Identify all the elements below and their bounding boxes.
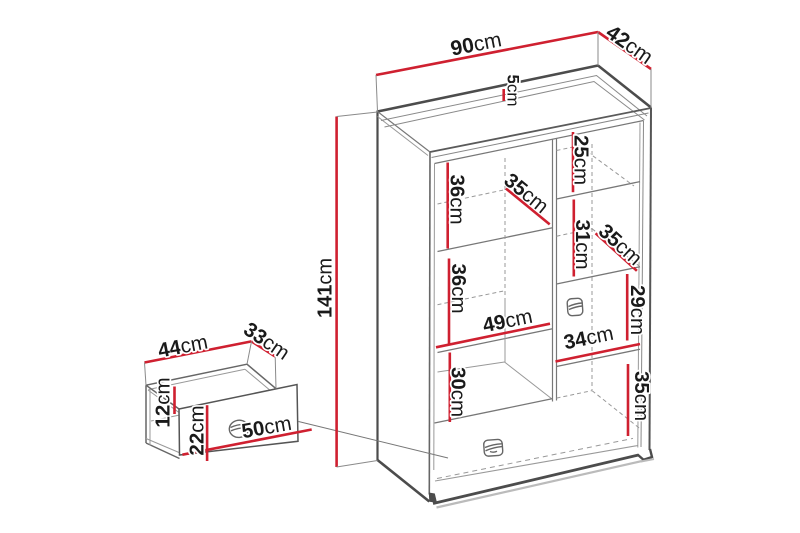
svg-text:22cm: 22cm — [185, 405, 208, 455]
svg-text:5cm: 5cm — [504, 74, 523, 106]
svg-text:141cm: 141cm — [315, 258, 337, 318]
svg-text:31cm: 31cm — [572, 219, 595, 269]
svg-text:12cm: 12cm — [151, 377, 174, 427]
svg-text:30cm: 30cm — [447, 367, 470, 417]
svg-text:35cm: 35cm — [631, 371, 654, 421]
svg-text:36cm: 36cm — [446, 174, 469, 224]
svg-text:29cm: 29cm — [627, 285, 650, 335]
svg-text:25cm: 25cm — [570, 135, 593, 185]
svg-text:36cm: 36cm — [448, 263, 471, 313]
